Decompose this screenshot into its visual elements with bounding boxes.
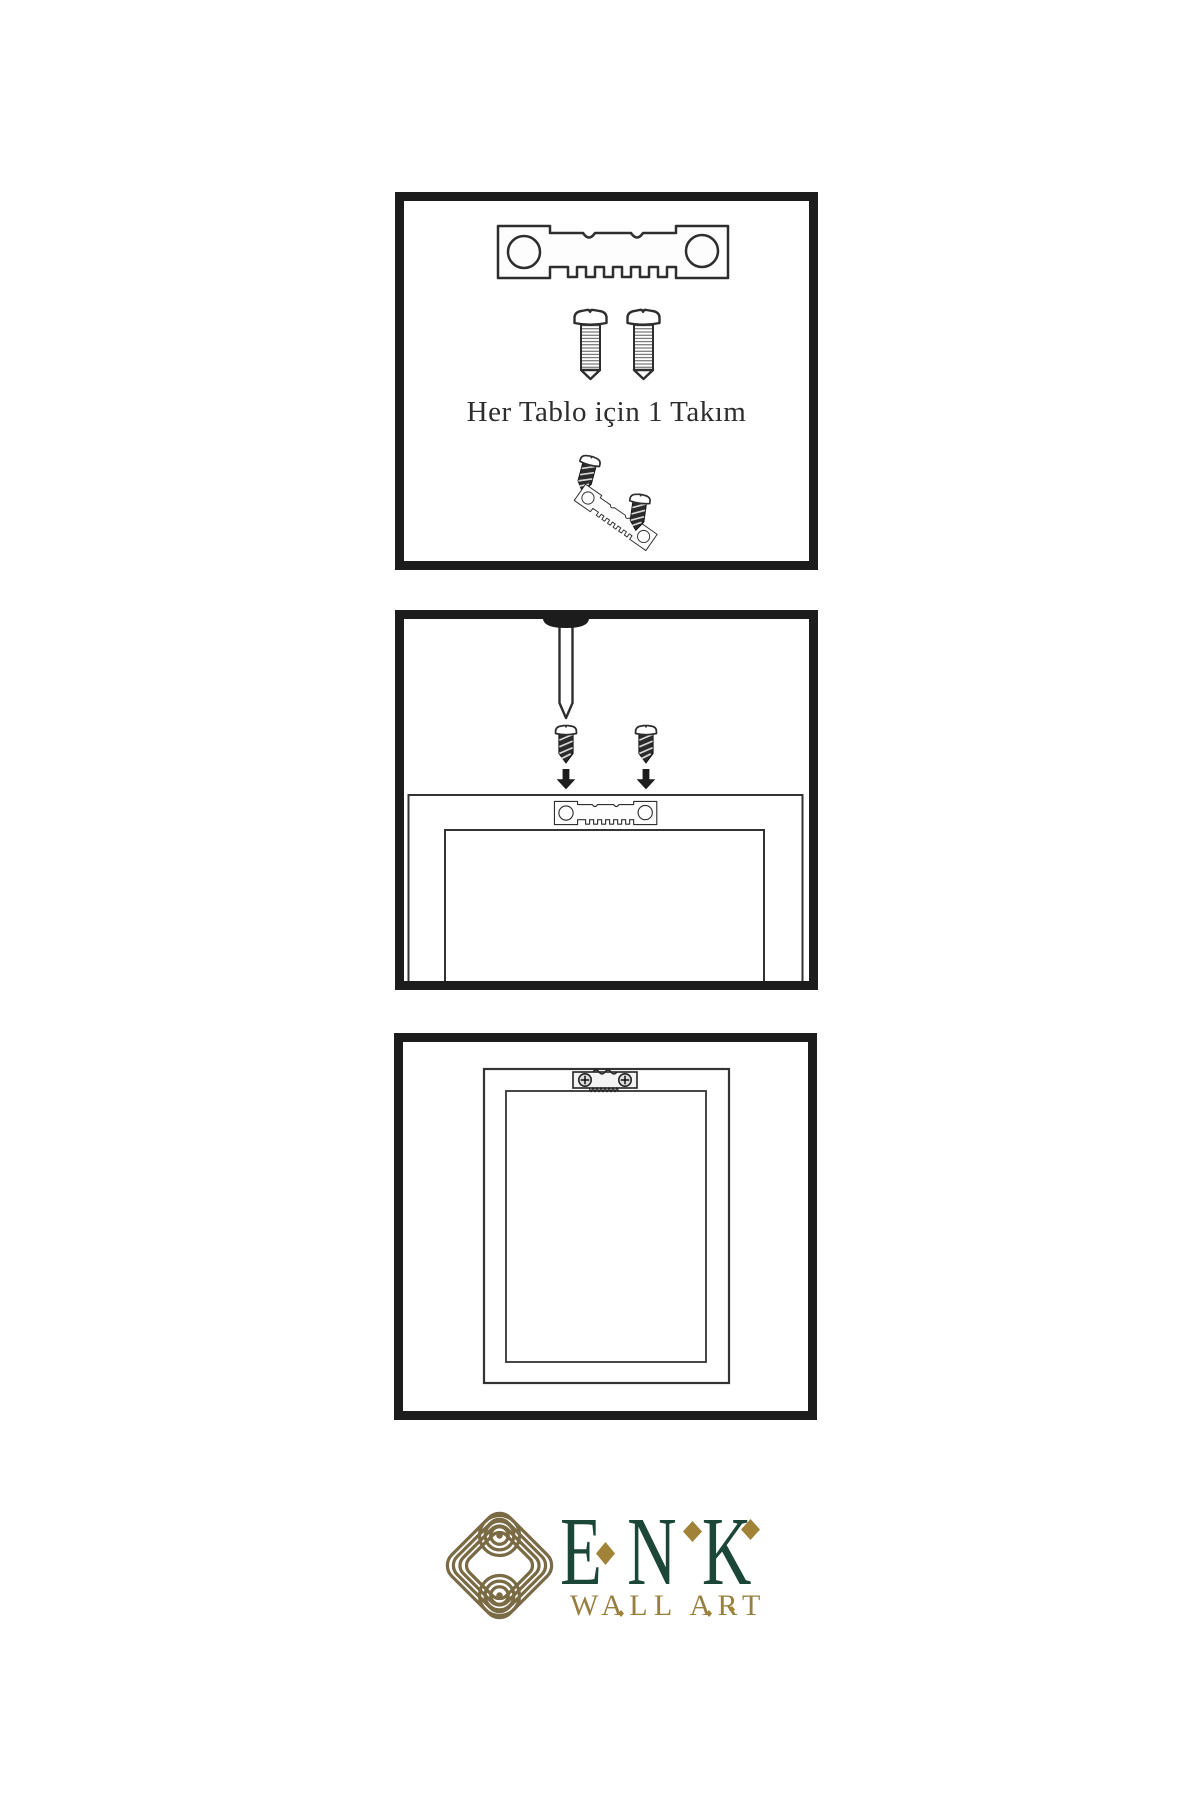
wall-nail-icon (543, 619, 589, 718)
brand-logo: ENK WALL ART (430, 1490, 800, 1660)
screw-icon (556, 725, 577, 762)
step-1-kit-panel: Her Tablo için 1 Takım (395, 192, 818, 570)
down-arrow-icon (557, 769, 576, 789)
brand-name: ENK (560, 1503, 777, 1601)
screw-icon (636, 725, 657, 762)
enk-knot-icon (437, 1498, 562, 1633)
hung-frame-illustration (403, 1042, 808, 1411)
frame-back-icon (409, 795, 803, 981)
step-3-hung-frame-panel (394, 1033, 817, 1420)
step-2-mounting-panel (395, 610, 818, 990)
mounting-screw-icon (628, 310, 660, 379)
sawtooth-hanger-on-frame (554, 801, 656, 824)
sawtooth-hanger-icon (498, 226, 728, 278)
mounted-hanger-icon (573, 1070, 637, 1092)
brand-subtitle: WALL ART (570, 1591, 767, 1621)
down-arrow-icon (637, 769, 656, 789)
kit-caption: Her Tablo için 1 Takım (404, 396, 809, 429)
mounting-screw-icon (575, 310, 607, 379)
hanging-kit-illustration (404, 201, 809, 561)
picture-frame-icon (484, 1069, 729, 1383)
hanger-assembly-icon (572, 454, 657, 551)
mounting-illustration (404, 619, 809, 981)
hanging-instruction-sheet: Her Tablo için 1 Takım (0, 0, 1200, 1800)
